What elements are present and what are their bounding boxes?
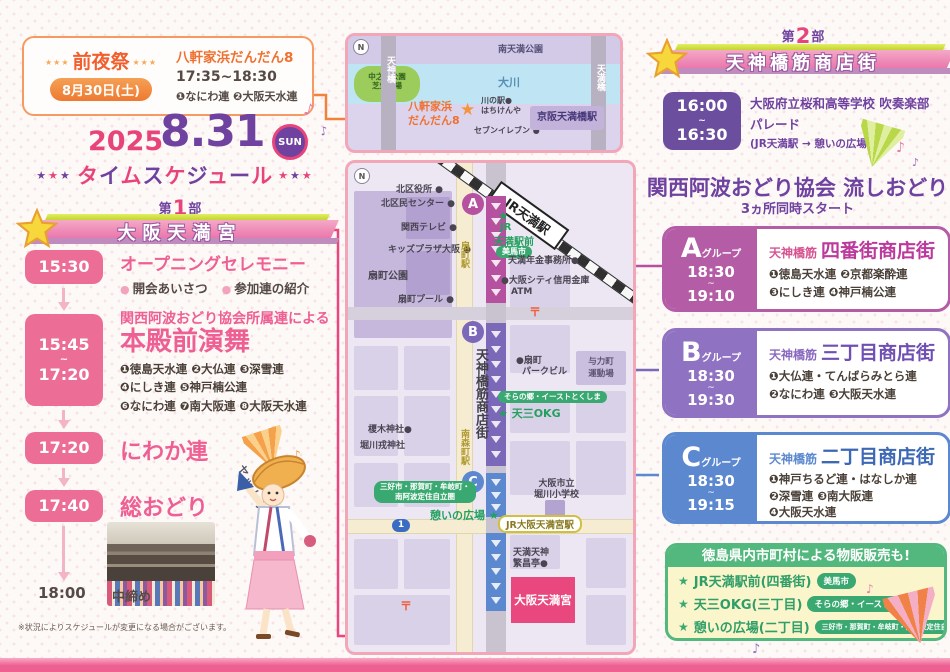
- time-value: 17:20: [25, 439, 103, 457]
- road-label: 天神橋: [384, 56, 397, 83]
- park-top-label: 南天満公園: [498, 45, 543, 56]
- part2-banner: 天神橋筋商店街: [660, 44, 946, 74]
- star-decoration-icon: ★★★: [133, 58, 158, 67]
- group-card-c: Cグループ 18:30 ~ 19:15 天神橋筋二丁目商店街 ❶神戸ちるど連・は…: [662, 432, 950, 524]
- eve-date-pill: 8月30日(土): [50, 78, 152, 101]
- time-value: 16:00: [663, 97, 741, 115]
- shotengai-label: 天神橋筋商店街: [471, 348, 490, 439]
- sales-star-icon: ★: [498, 209, 509, 223]
- area-prefix: 天神橋筋: [769, 246, 817, 260]
- area-name: 四番街商店街: [821, 240, 935, 262]
- badge-line: 三好市・那賀町・牟岐町・: [380, 482, 470, 492]
- venue-line: だんだん8: [408, 114, 460, 128]
- timeline-time-text: 18:00: [38, 584, 86, 602]
- group-suffix: グループ: [702, 249, 741, 260]
- music-note-icon: ♪: [752, 642, 760, 657]
- member-line: ❻なにわ連 ❼南大阪連 ❽大阪天水連: [120, 397, 330, 415]
- school-line: 大阪市立: [534, 479, 579, 490]
- event-title: にわか連: [120, 434, 208, 466]
- timeline-time: 15:45 ~ 17:20: [25, 314, 103, 406]
- poi-label: 天満年金事務所●: [508, 256, 579, 267]
- badge-line: 南阿波定住自立圏: [380, 492, 470, 502]
- eve-venue-map: 中之島公園 芝生広場 天神橋 天満橋 南天満公園 大川 八軒家浜 だんだん8 ★…: [345, 33, 623, 153]
- road-tenmabashi: [591, 36, 606, 150]
- group-suffix: グループ: [701, 458, 740, 469]
- star-icon: ★: [678, 620, 689, 634]
- timeline-arrow: [58, 302, 70, 311]
- eve-festival-title: 前夜祭: [72, 51, 129, 73]
- main-map: 与力町 運動場 JR天満駅 A B C 北区役所 ● 北区民センター ● 関西テ…: [345, 160, 636, 655]
- event-year: 2025: [88, 126, 163, 157]
- compass-icon: N: [353, 39, 369, 55]
- group-letter: C: [681, 442, 701, 473]
- hanjotei-label: 天満天神 繁昌亭●: [513, 548, 549, 571]
- map-block: [586, 538, 626, 588]
- timeline-time: 17:40: [25, 490, 103, 522]
- area-prefix: 天神橋筋: [769, 452, 817, 466]
- timeline-arrow: [58, 478, 70, 487]
- venue-line: 八軒家浜: [408, 100, 460, 114]
- time-value: 19:15: [665, 497, 757, 514]
- part-label: 第: [782, 30, 795, 45]
- event-title: オープニングセレモニー: [120, 250, 323, 275]
- star-icon: ★: [678, 574, 689, 588]
- group-a-details: 天神橋筋四番街商店街 ❶徳島天水連 ❷京都楽酔連 ❸にしき連 ❹神戸楠公連: [757, 229, 948, 309]
- school-line: 堀川小学校: [534, 490, 579, 501]
- music-note-icon: ♪: [896, 140, 905, 156]
- parade-strip-c2: [486, 533, 506, 611]
- timeline-time: 17:20: [25, 432, 103, 464]
- route-marker-a: A: [462, 193, 484, 215]
- time-value: 15:30: [25, 258, 103, 276]
- map-block: [354, 346, 398, 390]
- nagashi-subtitle: 3ヵ所同時スタート: [645, 198, 950, 217]
- member-line: ❷なにわ連 ❸大阪天水連: [769, 385, 938, 403]
- tensan-label: ★ 天三OKG: [498, 405, 561, 421]
- map-block: [406, 251, 450, 295]
- kawanoeki-label: 川の駅● はちけんや: [481, 96, 521, 116]
- river-label: 大川: [498, 76, 520, 90]
- timeline-arrow: [58, 572, 70, 581]
- sales-point-label: JR: [500, 222, 511, 233]
- member-line: ❶徳島天水連 ❷京都楽酔連: [769, 265, 938, 283]
- keihan-station: 京阪天満橋駅: [530, 106, 604, 130]
- part1-banner-title: 大阪天満宮: [30, 219, 330, 245]
- part1-banner: 大阪天満宮: [30, 214, 330, 244]
- mascot-illustration: [233, 443, 321, 648]
- music-note-icon: ♪: [319, 123, 329, 138]
- eve-venue: 八軒家浜だんだん8: [176, 46, 297, 66]
- flyer-page: ★★★前夜祭★★★ 8月30日(土) 八軒家浜だんだん8 17:35~18:30…: [0, 0, 950, 672]
- poi-label: 北区民センター ●: [381, 199, 455, 210]
- poi-line: はちけんや: [481, 106, 521, 116]
- time-value: 17:40: [25, 497, 103, 515]
- time-value: 16:30: [663, 126, 741, 144]
- star-decoration-icon: ★★★: [45, 58, 70, 67]
- timeline-connector: [62, 288, 65, 302]
- footer-bar: [0, 658, 950, 672]
- hanjotei-line: 繁昌亭●: [513, 559, 549, 570]
- group-card-b: Bグループ 18:30 ~ 19:30 天神橋筋三丁目商店街 ❶大仏連・てんばら…: [662, 328, 950, 418]
- bullet-item: 参加連の紹介: [222, 281, 310, 296]
- member-line: ❹大阪天水連: [769, 504, 938, 521]
- post-office-icon: 〒: [400, 597, 412, 614]
- poi-label: ●大阪シティ信用金庫: [501, 276, 589, 287]
- eve-festival-left: ★★★前夜祭★★★ 8月30日(土): [32, 47, 170, 101]
- time-value: 19:10: [665, 288, 757, 305]
- photo-sky: [107, 522, 215, 544]
- part-label: 部: [811, 30, 824, 45]
- map-block-yoriki: 与力町 運動場: [576, 351, 626, 385]
- group-b-time-panel: Bグループ 18:30 ~ 19:30: [665, 331, 757, 415]
- road-label: 天満橋: [594, 64, 607, 91]
- goods-place: JR天満駅前(四番街): [694, 571, 812, 590]
- yoriki-label: 運動場: [576, 367, 626, 379]
- miyoshi-badge: 三好市・那賀町・牟岐町・ 南阿波定住自立圏: [374, 481, 476, 503]
- eve-festival-box: ★★★前夜祭★★★ 8月30日(土) 八軒家浜だんだん8 17:35~18:30…: [22, 36, 314, 116]
- road-tenjinbashi: [381, 36, 396, 150]
- poi-label: 榎木神社●: [368, 425, 412, 436]
- yoriki-label: 与力町: [576, 355, 626, 367]
- group-b-details: 天神橋筋三丁目商店街 ❶大仏連・てんばらみとら連 ❷なにわ連 ❸大阪天水連: [757, 331, 948, 415]
- goods-place: 天三OKG(三丁目): [694, 594, 803, 613]
- schedule-title: タイムスケジュール: [77, 164, 273, 188]
- group-card-a: Aグループ 18:30 ~ 19:10 天神橋筋四番街商店街 ❶徳島天水連 ❷京…: [662, 226, 950, 312]
- poi-label: ATM: [511, 287, 532, 298]
- route-marker-b: B: [462, 321, 484, 343]
- member-list: ❶徳島天水連 ❷大仏連 ❸深雪連 ❹にしき連 ❺神戸楠公連 ❻なにわ連 ❼南大阪…: [120, 360, 330, 415]
- part2-banner-title: 天神橋筋商店街: [660, 49, 946, 75]
- member-line: ❷深雪連 ❸南大阪連: [769, 488, 938, 505]
- map-block: [404, 539, 450, 589]
- minamimorimachi-station-label: 南森町駅: [458, 429, 471, 465]
- ikoi-label: 憩いの広場 ★: [430, 507, 499, 523]
- compass-icon: N: [354, 168, 370, 184]
- event-title: 本殿前演舞: [120, 328, 330, 358]
- event-lead: 関西阿波おどり協会所属連による: [120, 308, 330, 328]
- schedule-note: ※状況によりスケジュールが変更になる場合がございます。: [18, 622, 231, 633]
- event-title: 中締め: [112, 586, 151, 605]
- poi-label: パークビル: [522, 367, 567, 378]
- photo-temple-gate: [107, 544, 215, 581]
- event-date: 8.31: [160, 106, 265, 157]
- eve-venue-map-label: 八軒家浜 だんだん8: [408, 100, 460, 128]
- time-value: 19:30: [665, 392, 757, 409]
- music-note-icon: ♪: [866, 582, 874, 596]
- group-a-time-panel: Aグループ 18:30 ~ 19:10: [665, 229, 757, 309]
- eve-groups: ❶なにわ連 ❷大阪天水連: [176, 88, 297, 104]
- goods-badge: 美馬市: [817, 573, 857, 589]
- map-block: [576, 441, 626, 495]
- event-day-badge: SUN: [272, 124, 308, 160]
- timeline-connector: [62, 526, 65, 572]
- schedule-title-row: ★★★ タイムスケジュール ★★★: [35, 160, 315, 190]
- map-block: [404, 346, 450, 390]
- parade-time: 16:00 ~ 16:30: [663, 92, 741, 150]
- tenmangu-shrine-box: 大阪天満宮: [511, 577, 575, 623]
- star-decoration-icon: ★★★: [278, 169, 314, 182]
- parade-line: 大阪府立桜和高等学校 吹奏楽部: [750, 93, 929, 112]
- time-value: 17:20: [25, 366, 103, 384]
- poi-label: 堀川戎神社: [360, 441, 405, 452]
- jr-osakatemmangu-station-label: JR大阪天満宮駅: [498, 515, 582, 533]
- timeline-arrow: [58, 420, 70, 429]
- goods-row: ★ JR天満駅前(四番街) 美馬市: [678, 571, 936, 590]
- star-decoration-icon: ★★★: [36, 169, 72, 182]
- timeline-time: 15:30: [25, 250, 103, 284]
- poi-label: ●扇町: [516, 356, 542, 367]
- eve-festival-details: 八軒家浜だんだん8 17:35~18:30 ❶なにわ連 ❷大阪天水連: [176, 46, 297, 104]
- bullet-item: 開会あいさつ: [120, 281, 208, 296]
- eve-time: 17:35~18:30: [176, 69, 297, 85]
- group-letter: A: [681, 233, 702, 264]
- member-line: ❹にしき連 ❺神戸楠公連: [120, 378, 330, 396]
- map-block: [354, 539, 398, 589]
- area-name: 三丁目商店街: [821, 342, 935, 364]
- group-suffix: グループ: [702, 353, 741, 364]
- timeline-connector: [62, 468, 65, 478]
- area-prefix: 天神橋筋: [769, 348, 817, 362]
- map-block: [586, 595, 626, 645]
- star-icon: ★: [678, 597, 689, 611]
- poi-label: 関西テレビ ●: [401, 223, 457, 234]
- poi-label: 扇町プール ●: [398, 295, 454, 306]
- timeline-event-1: オープニングセレモニー 開会あいさつ参加連の紹介: [120, 250, 323, 297]
- goods-title: 徳島県内市町村による物販販売も!: [668, 546, 944, 567]
- member-line: ❶徳島天水連 ❷大仏連 ❸深雪連: [120, 360, 330, 378]
- horikawa-school-label: 大阪市立 堀川小学校: [534, 479, 579, 502]
- member-line: ❸にしき連 ❹神戸楠公連: [769, 283, 938, 301]
- event-title: 総おどり: [120, 490, 208, 522]
- route1-shield: 1: [392, 519, 410, 532]
- goods-place: 憩いの広場(二丁目): [694, 617, 810, 636]
- member-line: ❶神戸ちるど連・はなしか連: [769, 471, 938, 488]
- goods-badge: 三好市・那賀町・牟岐町・南阿波定住自立圏: [815, 620, 947, 634]
- music-note-icon: ♪: [912, 156, 919, 169]
- ogimachi-station-label: 扇町駅: [458, 241, 471, 268]
- timeline-connector: [62, 410, 65, 420]
- poi-label: 扇町公園: [368, 271, 408, 284]
- group-c-details: 天神橋筋二丁目商店街 ❶神戸ちるど連・はなしか連 ❷深雪連 ❸南大阪連 ❹大阪天…: [757, 435, 948, 521]
- post-office-icon: 〒: [529, 303, 541, 320]
- hanjotei-line: 天満天神: [513, 548, 549, 559]
- time-value: 15:45: [25, 336, 103, 354]
- group-letter: B: [681, 337, 702, 368]
- poi-label: 北区役所 ●: [396, 185, 443, 196]
- group-c-time-panel: Cグループ 18:30 ~ 19:15: [665, 435, 757, 521]
- area-name: 二丁目商店街: [821, 446, 935, 468]
- poi-line: 川の駅●: [481, 96, 521, 106]
- sora-badge: そらの郷・イーストとくしま: [498, 391, 607, 403]
- member-line: ❶大仏連・てんばらみとら連: [769, 367, 938, 385]
- timeline-event-2: 関西阿波おどり協会所属連による 本殿前演舞 ❶徳島天水連 ❷大仏連 ❸深雪連 ❹…: [120, 308, 330, 415]
- event-bullets: 開会あいさつ参加連の紹介: [120, 278, 323, 297]
- venue-star-icon: ★: [460, 100, 475, 120]
